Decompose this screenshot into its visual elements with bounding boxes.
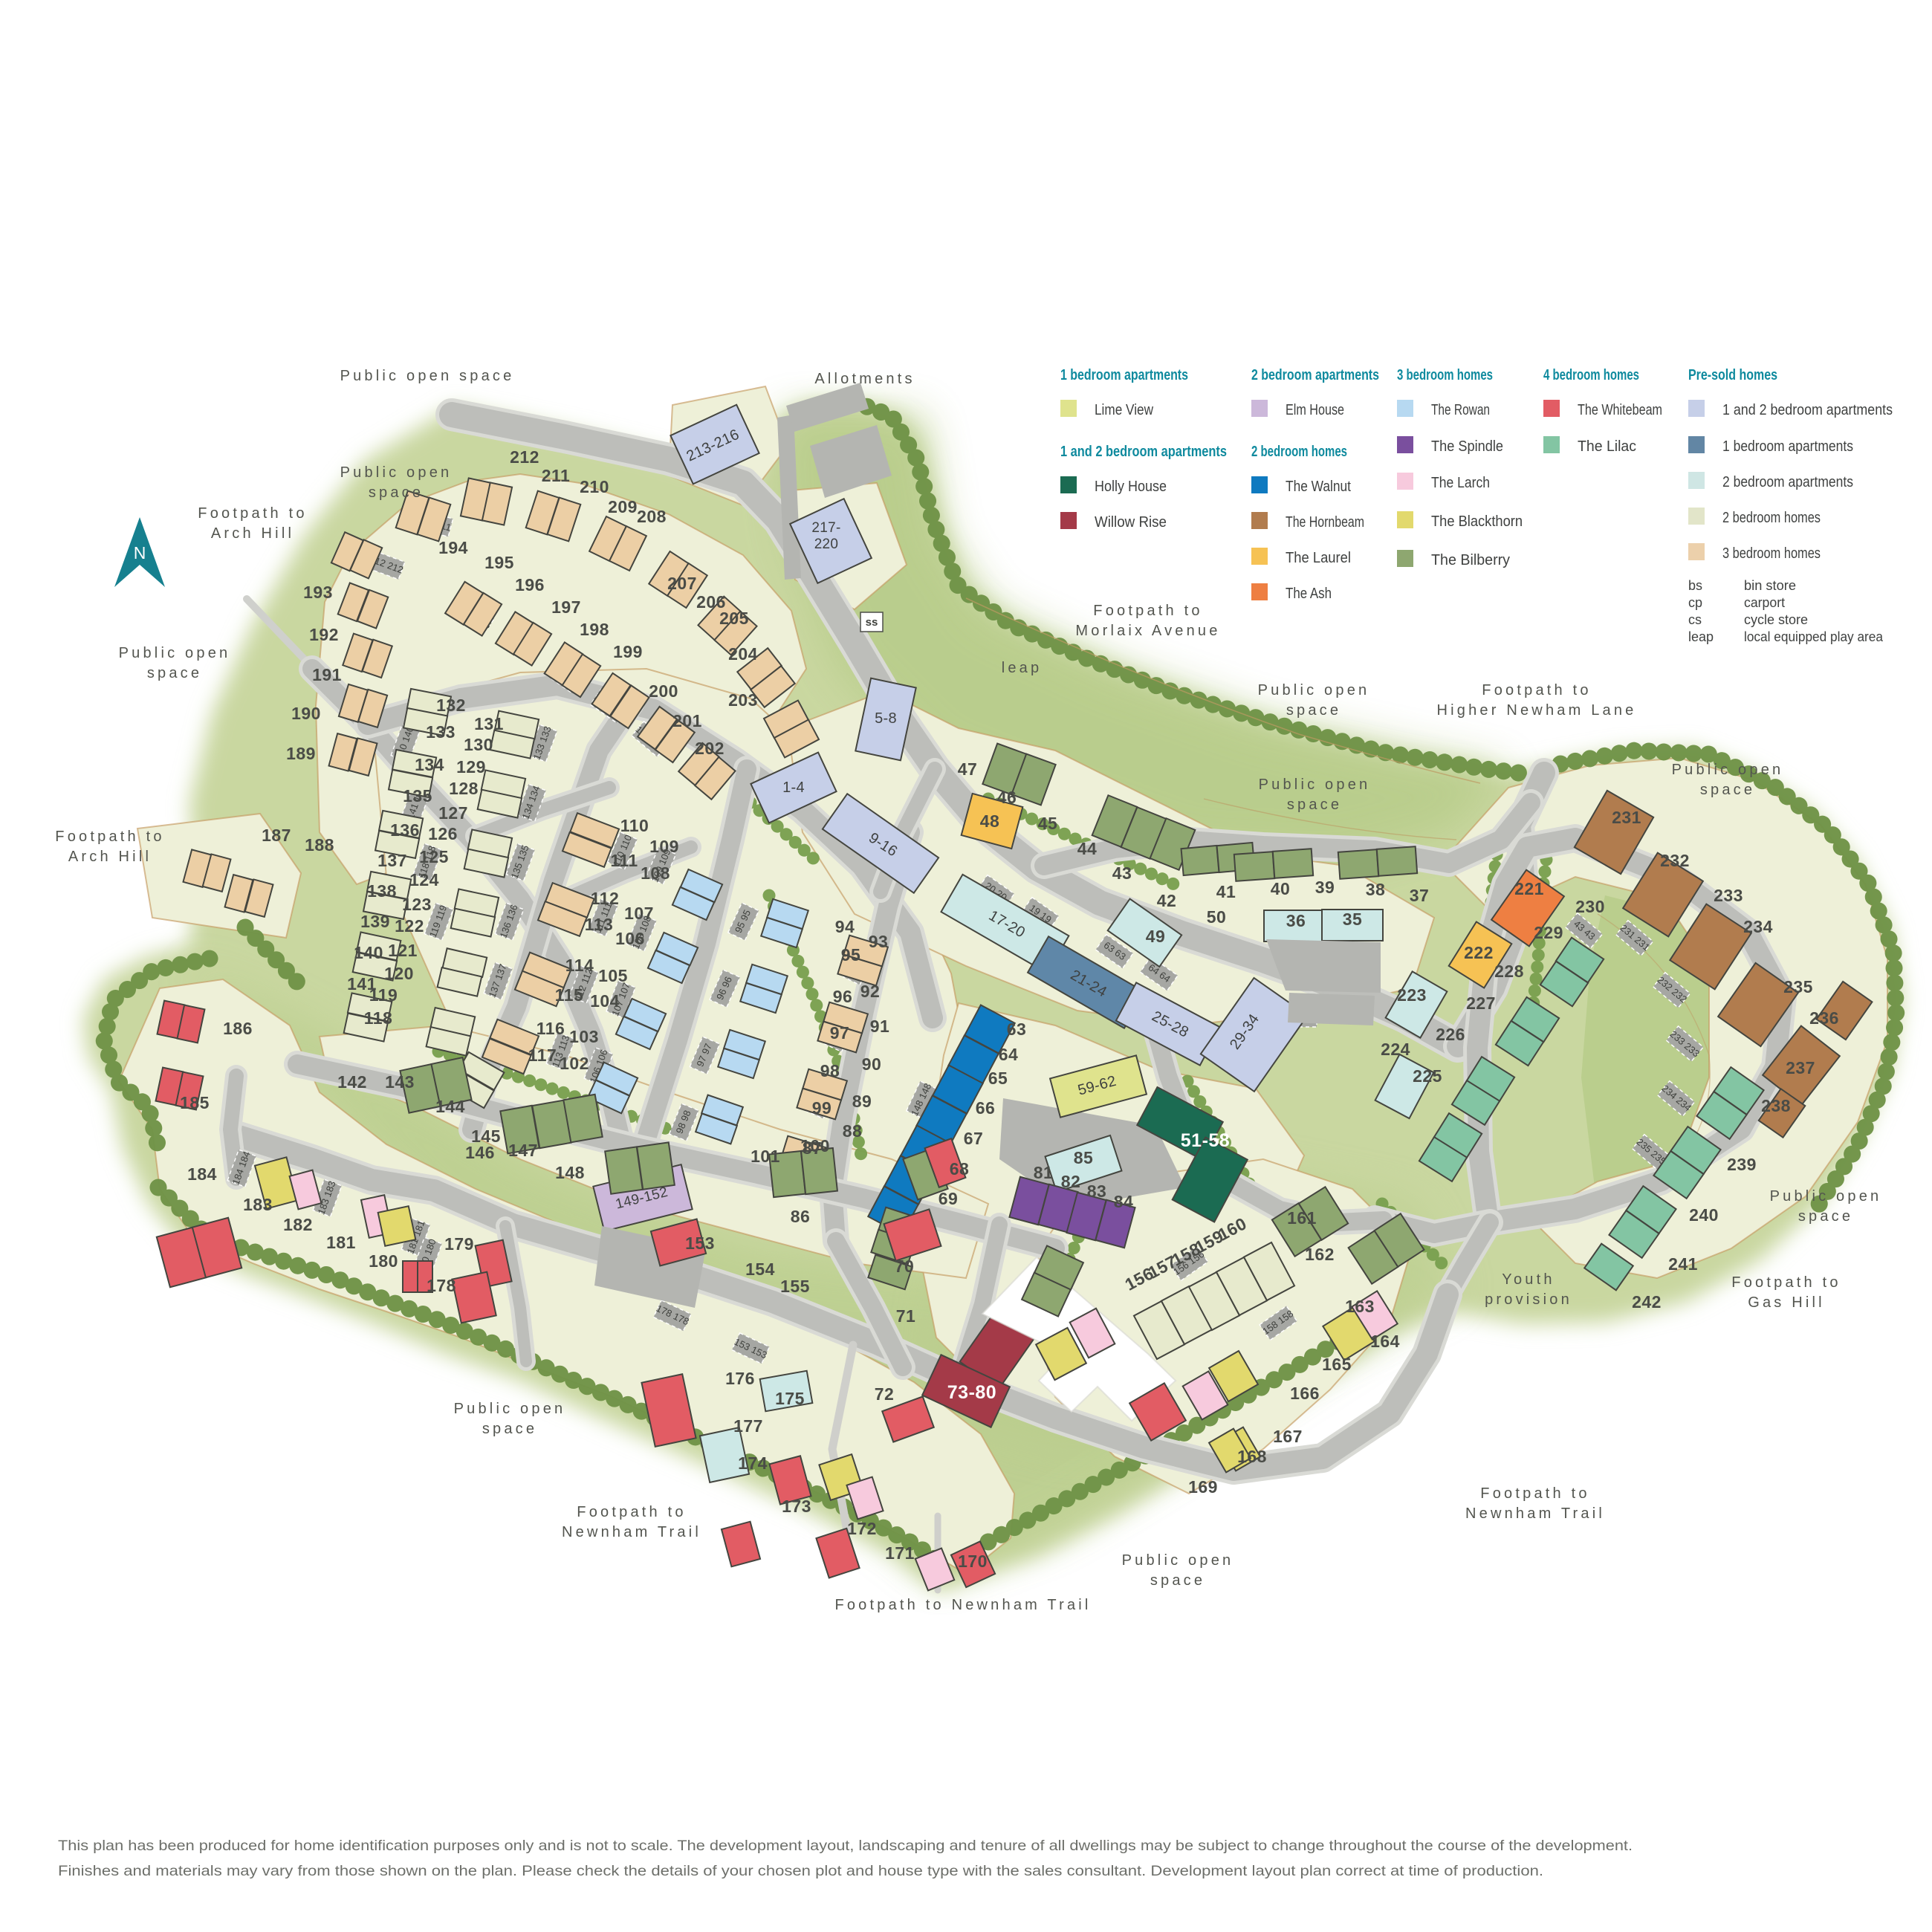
svg-text:The Rowan: The Rowan (1431, 402, 1490, 418)
svg-text:97: 97 (830, 1023, 850, 1043)
svg-text:N: N (134, 543, 146, 563)
svg-text:5-8: 5-8 (875, 710, 897, 727)
svg-text:144: 144 (435, 1097, 465, 1116)
svg-text:174: 174 (738, 1453, 768, 1473)
svg-text:192: 192 (309, 625, 339, 644)
svg-text:112: 112 (591, 889, 620, 908)
svg-text:138: 138 (367, 881, 397, 901)
svg-text:provision: provision (1485, 1291, 1572, 1308)
svg-text:Higher Newham Lane: Higher Newham Lane (1436, 702, 1636, 719)
svg-text:50: 50 (1207, 907, 1227, 927)
svg-text:202: 202 (695, 739, 724, 758)
svg-text:72: 72 (875, 1384, 895, 1404)
svg-text:232: 232 (1660, 851, 1690, 870)
svg-text:Public open: Public open (1259, 777, 1371, 793)
svg-text:231: 231 (1612, 808, 1641, 827)
svg-text:69: 69 (939, 1189, 959, 1208)
svg-text:3 bedroom homes: 3 bedroom homes (1397, 367, 1493, 383)
svg-text:1 bedroom apartments: 1 bedroom apartments (1060, 367, 1188, 383)
svg-text:Footpath to: Footpath to (1482, 682, 1591, 698)
svg-text:139: 139 (360, 912, 390, 931)
svg-text:2 bedroom apartments: 2 bedroom apartments (1722, 474, 1853, 490)
svg-text:40: 40 (1271, 879, 1291, 898)
svg-text:168: 168 (1237, 1447, 1267, 1466)
svg-text:132: 132 (436, 696, 466, 715)
svg-text:47: 47 (958, 759, 978, 779)
svg-text:236: 236 (1809, 1008, 1839, 1028)
svg-text:48: 48 (980, 811, 1000, 831)
svg-text:space: space (147, 665, 202, 681)
svg-text:164: 164 (1370, 1332, 1400, 1351)
svg-text:137: 137 (377, 851, 407, 870)
svg-text:127: 127 (438, 803, 468, 823)
svg-text:86: 86 (791, 1207, 811, 1226)
svg-text:193: 193 (303, 583, 333, 602)
svg-text:Footpath to: Footpath to (577, 1504, 686, 1520)
svg-text:166: 166 (1290, 1384, 1320, 1403)
svg-text:This plan has been produced fo: This plan has been produced for home ide… (58, 1838, 1633, 1854)
svg-text:2 bedroom homes: 2 bedroom homes (1251, 444, 1347, 460)
svg-text:123: 123 (402, 895, 432, 914)
svg-text:135: 135 (403, 786, 432, 805)
svg-text:Gas Hill: Gas Hill (1748, 1294, 1825, 1311)
svg-text:180: 180 (369, 1251, 398, 1271)
svg-text:146: 146 (465, 1143, 495, 1162)
svg-text:110: 110 (620, 816, 649, 835)
svg-text:181: 181 (326, 1233, 356, 1252)
svg-text:Public open: Public open (454, 1401, 566, 1417)
svg-text:111: 111 (610, 851, 638, 870)
svg-text:42: 42 (1157, 891, 1177, 910)
svg-text:89: 89 (852, 1092, 872, 1111)
svg-text:117: 117 (528, 1046, 557, 1065)
svg-text:Pre-sold homes: Pre-sold homes (1688, 367, 1777, 383)
svg-text:172: 172 (847, 1519, 877, 1538)
svg-text:38: 38 (1366, 880, 1386, 899)
svg-text:153: 153 (685, 1234, 715, 1253)
svg-text:103: 103 (569, 1027, 599, 1046)
svg-text:1 and 2 bedroom apartments: 1 and 2 bedroom apartments (1722, 402, 1893, 418)
svg-text:225: 225 (1413, 1066, 1442, 1086)
svg-text:211: 211 (542, 466, 571, 485)
svg-text:233: 233 (1714, 886, 1743, 905)
svg-text:175: 175 (775, 1389, 805, 1408)
svg-text:195: 195 (484, 553, 514, 572)
svg-text:183: 183 (243, 1195, 273, 1214)
svg-text:182: 182 (283, 1215, 313, 1234)
svg-text:104: 104 (590, 991, 620, 1011)
svg-text:191: 191 (312, 665, 342, 684)
svg-text:115: 115 (555, 985, 584, 1005)
svg-text:126: 126 (428, 824, 458, 843)
svg-text:63: 63 (1007, 1020, 1027, 1039)
svg-text:207: 207 (667, 574, 697, 593)
svg-text:92: 92 (860, 982, 881, 1001)
svg-text:Morlaix Avenue: Morlaix Avenue (1075, 623, 1220, 639)
svg-text:194: 194 (438, 538, 468, 557)
svg-text:238: 238 (1761, 1096, 1791, 1115)
svg-text:173: 173 (782, 1497, 811, 1516)
svg-text:114: 114 (565, 956, 594, 975)
svg-text:229: 229 (1534, 923, 1563, 942)
svg-text:41: 41 (1216, 882, 1236, 901)
svg-text:Public open: Public open (1672, 762, 1784, 778)
svg-text:Footpath to: Footpath to (198, 505, 307, 522)
svg-text:space: space (369, 484, 424, 501)
svg-text:227: 227 (1466, 993, 1496, 1013)
svg-text:Public open: Public open (119, 645, 231, 661)
svg-text:226: 226 (1436, 1025, 1465, 1044)
svg-text:45: 45 (1038, 814, 1058, 833)
svg-text:Footpath to: Footpath to (55, 829, 164, 845)
svg-text:space: space (1798, 1208, 1853, 1225)
svg-text:224: 224 (1381, 1040, 1410, 1059)
svg-text:83: 83 (1087, 1181, 1107, 1201)
svg-text:space: space (482, 1421, 537, 1437)
svg-text:44: 44 (1077, 839, 1098, 858)
svg-text:235: 235 (1783, 977, 1813, 996)
svg-text:93: 93 (869, 932, 889, 951)
svg-text:cp: cp (1688, 595, 1702, 610)
svg-text:Public open: Public open (1770, 1188, 1882, 1205)
svg-text:95: 95 (841, 945, 861, 965)
svg-text:220: 220 (814, 537, 839, 552)
svg-text:210: 210 (580, 477, 609, 496)
svg-text:96: 96 (833, 987, 853, 1006)
svg-text:129: 129 (456, 757, 486, 777)
svg-text:46: 46 (997, 788, 1017, 807)
svg-text:119: 119 (369, 985, 398, 1005)
svg-text:99: 99 (812, 1098, 832, 1118)
svg-text:221: 221 (1514, 879, 1544, 898)
svg-text:space: space (1286, 702, 1341, 719)
svg-text:120: 120 (384, 964, 414, 983)
svg-text:73-80: 73-80 (947, 1382, 996, 1403)
svg-text:171: 171 (885, 1543, 915, 1563)
svg-text:4 bedroom homes: 4 bedroom homes (1543, 367, 1639, 383)
svg-text:154: 154 (745, 1260, 775, 1279)
svg-text:90: 90 (862, 1054, 882, 1074)
svg-text:98: 98 (820, 1061, 840, 1080)
svg-text:223: 223 (1397, 985, 1427, 1005)
svg-text:136: 136 (390, 820, 420, 840)
svg-text:242: 242 (1632, 1292, 1662, 1312)
svg-text:ss: ss (866, 616, 878, 629)
svg-text:241: 241 (1668, 1254, 1698, 1274)
svg-text:121: 121 (388, 941, 418, 960)
svg-text:64: 64 (999, 1045, 1019, 1064)
svg-text:113: 113 (585, 915, 614, 934)
svg-text:228: 228 (1494, 962, 1524, 981)
svg-text:Elm House: Elm House (1286, 402, 1344, 418)
svg-text:209: 209 (608, 497, 638, 516)
svg-text:The Ash: The Ash (1286, 586, 1332, 602)
svg-text:Public open: Public open (340, 464, 453, 481)
svg-text:Arch Hill: Arch Hill (211, 525, 294, 542)
svg-text:66: 66 (976, 1098, 996, 1118)
svg-text:Allotments: Allotments (814, 371, 915, 387)
svg-text:The Whitebeam: The Whitebeam (1578, 402, 1662, 418)
svg-text:206: 206 (696, 592, 726, 612)
svg-text:The Bilberry: The Bilberry (1431, 552, 1510, 568)
svg-text:169: 169 (1188, 1477, 1218, 1497)
svg-text:118: 118 (364, 1008, 393, 1028)
svg-text:167: 167 (1273, 1427, 1303, 1446)
svg-text:204: 204 (728, 644, 758, 664)
svg-text:240: 240 (1689, 1205, 1719, 1225)
svg-text:3 bedroom homes: 3 bedroom homes (1722, 545, 1821, 562)
svg-text:71: 71 (896, 1306, 916, 1326)
svg-text:Newnham Trail: Newnham Trail (1465, 1505, 1605, 1522)
svg-text:107: 107 (624, 904, 654, 923)
svg-text:212: 212 (510, 447, 539, 467)
svg-text:203: 203 (728, 690, 758, 710)
svg-text:local equipped play area: local equipped play area (1744, 629, 1884, 644)
svg-text:237: 237 (1786, 1058, 1815, 1077)
svg-text:134: 134 (415, 755, 444, 774)
svg-text:116: 116 (537, 1019, 565, 1038)
svg-text:37: 37 (1410, 886, 1430, 905)
svg-text:Arch Hill: Arch Hill (68, 849, 152, 865)
svg-text:217-: 217- (811, 520, 840, 536)
svg-text:84: 84 (1114, 1192, 1134, 1211)
svg-text:88: 88 (843, 1121, 863, 1141)
svg-text:239: 239 (1727, 1155, 1757, 1174)
svg-text:Willow Rise: Willow Rise (1095, 514, 1167, 531)
svg-text:carport: carport (1744, 595, 1785, 610)
svg-text:162: 162 (1305, 1245, 1335, 1264)
svg-text:51-58: 51-58 (1181, 1130, 1230, 1151)
svg-text:196: 196 (515, 575, 545, 594)
svg-text:177: 177 (733, 1416, 763, 1436)
svg-text:The Walnut: The Walnut (1286, 479, 1351, 495)
svg-text:200: 200 (649, 681, 678, 701)
svg-text:143: 143 (385, 1072, 415, 1092)
svg-text:bs: bs (1688, 578, 1702, 593)
svg-text:142: 142 (337, 1072, 367, 1092)
svg-text:67: 67 (964, 1129, 984, 1148)
svg-text:131: 131 (474, 714, 504, 733)
svg-text:cs: cs (1688, 612, 1702, 627)
svg-text:199: 199 (613, 642, 643, 661)
svg-text:161: 161 (1287, 1208, 1317, 1228)
svg-text:The Laurel: The Laurel (1286, 550, 1351, 566)
svg-text:179: 179 (444, 1234, 474, 1254)
svg-text:space: space (1287, 797, 1342, 813)
svg-text:Holly House: Holly House (1095, 479, 1167, 495)
svg-text:190: 190 (291, 704, 321, 723)
svg-text:Finishes and materials may var: Finishes and materials may vary from tho… (58, 1863, 1543, 1879)
svg-text:Public open space: Public open space (340, 368, 515, 384)
svg-text:Public open: Public open (1258, 682, 1370, 698)
svg-text:cycle store: cycle store (1744, 612, 1808, 627)
svg-text:101: 101 (751, 1147, 780, 1166)
svg-text:155: 155 (780, 1277, 810, 1296)
svg-text:198: 198 (580, 620, 609, 639)
svg-text:space: space (1700, 782, 1755, 798)
svg-text:163: 163 (1345, 1297, 1375, 1316)
svg-text:82: 82 (1061, 1172, 1081, 1191)
svg-text:36: 36 (1286, 911, 1306, 930)
svg-text:35: 35 (1343, 910, 1363, 929)
svg-text:230: 230 (1575, 897, 1605, 916)
svg-text:128: 128 (449, 779, 479, 798)
svg-text:125: 125 (419, 847, 449, 866)
svg-text:130: 130 (464, 735, 493, 754)
svg-text:70: 70 (895, 1257, 915, 1276)
svg-text:102: 102 (560, 1054, 589, 1073)
svg-text:133: 133 (426, 722, 456, 742)
svg-text:165: 165 (1322, 1355, 1352, 1374)
svg-text:2 bedroom apartments: 2 bedroom apartments (1251, 367, 1379, 383)
svg-text:87: 87 (803, 1138, 823, 1158)
svg-text:39: 39 (1315, 878, 1335, 897)
svg-text:140: 140 (354, 943, 383, 962)
svg-text:147: 147 (508, 1141, 538, 1160)
svg-text:Lime View: Lime View (1095, 402, 1153, 418)
svg-text:208: 208 (637, 507, 667, 526)
svg-text:Youth: Youth (1502, 1271, 1555, 1288)
svg-text:The Lilac: The Lilac (1578, 438, 1636, 455)
svg-text:1 bedroom apartments: 1 bedroom apartments (1722, 438, 1853, 455)
svg-text:1 and 2 bedroom apartments: 1 and 2 bedroom apartments (1060, 444, 1227, 460)
svg-text:188: 188 (305, 835, 334, 855)
svg-text:68: 68 (950, 1159, 970, 1179)
svg-text:94: 94 (835, 917, 855, 936)
svg-text:Public open: Public open (1122, 1552, 1234, 1569)
svg-text:49: 49 (1146, 927, 1166, 946)
svg-text:space: space (1150, 1572, 1205, 1589)
svg-text:201: 201 (672, 711, 702, 730)
svg-text:65: 65 (988, 1069, 1008, 1088)
svg-text:109: 109 (649, 837, 679, 856)
svg-text:Newnham Trail: Newnham Trail (562, 1524, 701, 1540)
svg-text:91: 91 (870, 1017, 890, 1036)
svg-text:Footpath to: Footpath to (1093, 603, 1202, 619)
svg-text:106: 106 (615, 929, 645, 948)
svg-text:bin store: bin store (1744, 578, 1796, 593)
svg-text:The Larch: The Larch (1431, 475, 1490, 491)
svg-text:81: 81 (1034, 1163, 1054, 1182)
svg-text:189: 189 (286, 744, 316, 763)
svg-text:The Blackthorn: The Blackthorn (1431, 513, 1523, 530)
svg-text:187: 187 (262, 826, 291, 845)
svg-text:Footpath to Newnham Trail: Footpath to Newnham Trail (834, 1597, 1091, 1613)
svg-text:148: 148 (555, 1163, 585, 1182)
svg-text:170: 170 (958, 1552, 988, 1571)
svg-text:234: 234 (1743, 917, 1773, 936)
svg-text:85: 85 (1074, 1148, 1094, 1167)
svg-text:178: 178 (427, 1276, 456, 1295)
svg-text:leap: leap (1002, 660, 1043, 676)
svg-text:124: 124 (409, 870, 439, 889)
svg-text:Footpath to: Footpath to (1480, 1485, 1589, 1502)
svg-text:122: 122 (395, 916, 424, 936)
svg-text:1-4: 1-4 (782, 779, 805, 796)
svg-text:108: 108 (641, 863, 670, 883)
svg-text:2 bedroom homes: 2 bedroom homes (1722, 510, 1821, 526)
svg-text:185: 185 (180, 1093, 210, 1112)
svg-text:The Hornbeam: The Hornbeam (1286, 514, 1364, 531)
svg-text:The Spindle: The Spindle (1431, 438, 1503, 455)
svg-text:Footpath to: Footpath to (1731, 1274, 1841, 1291)
svg-text:222: 222 (1464, 943, 1494, 962)
svg-text:105: 105 (598, 966, 628, 985)
svg-text:197: 197 (551, 597, 581, 617)
svg-text:186: 186 (223, 1019, 253, 1038)
svg-text:176: 176 (725, 1369, 755, 1388)
svg-text:43: 43 (1112, 863, 1132, 883)
svg-text:184: 184 (187, 1164, 217, 1184)
svg-text:leap: leap (1688, 629, 1714, 644)
